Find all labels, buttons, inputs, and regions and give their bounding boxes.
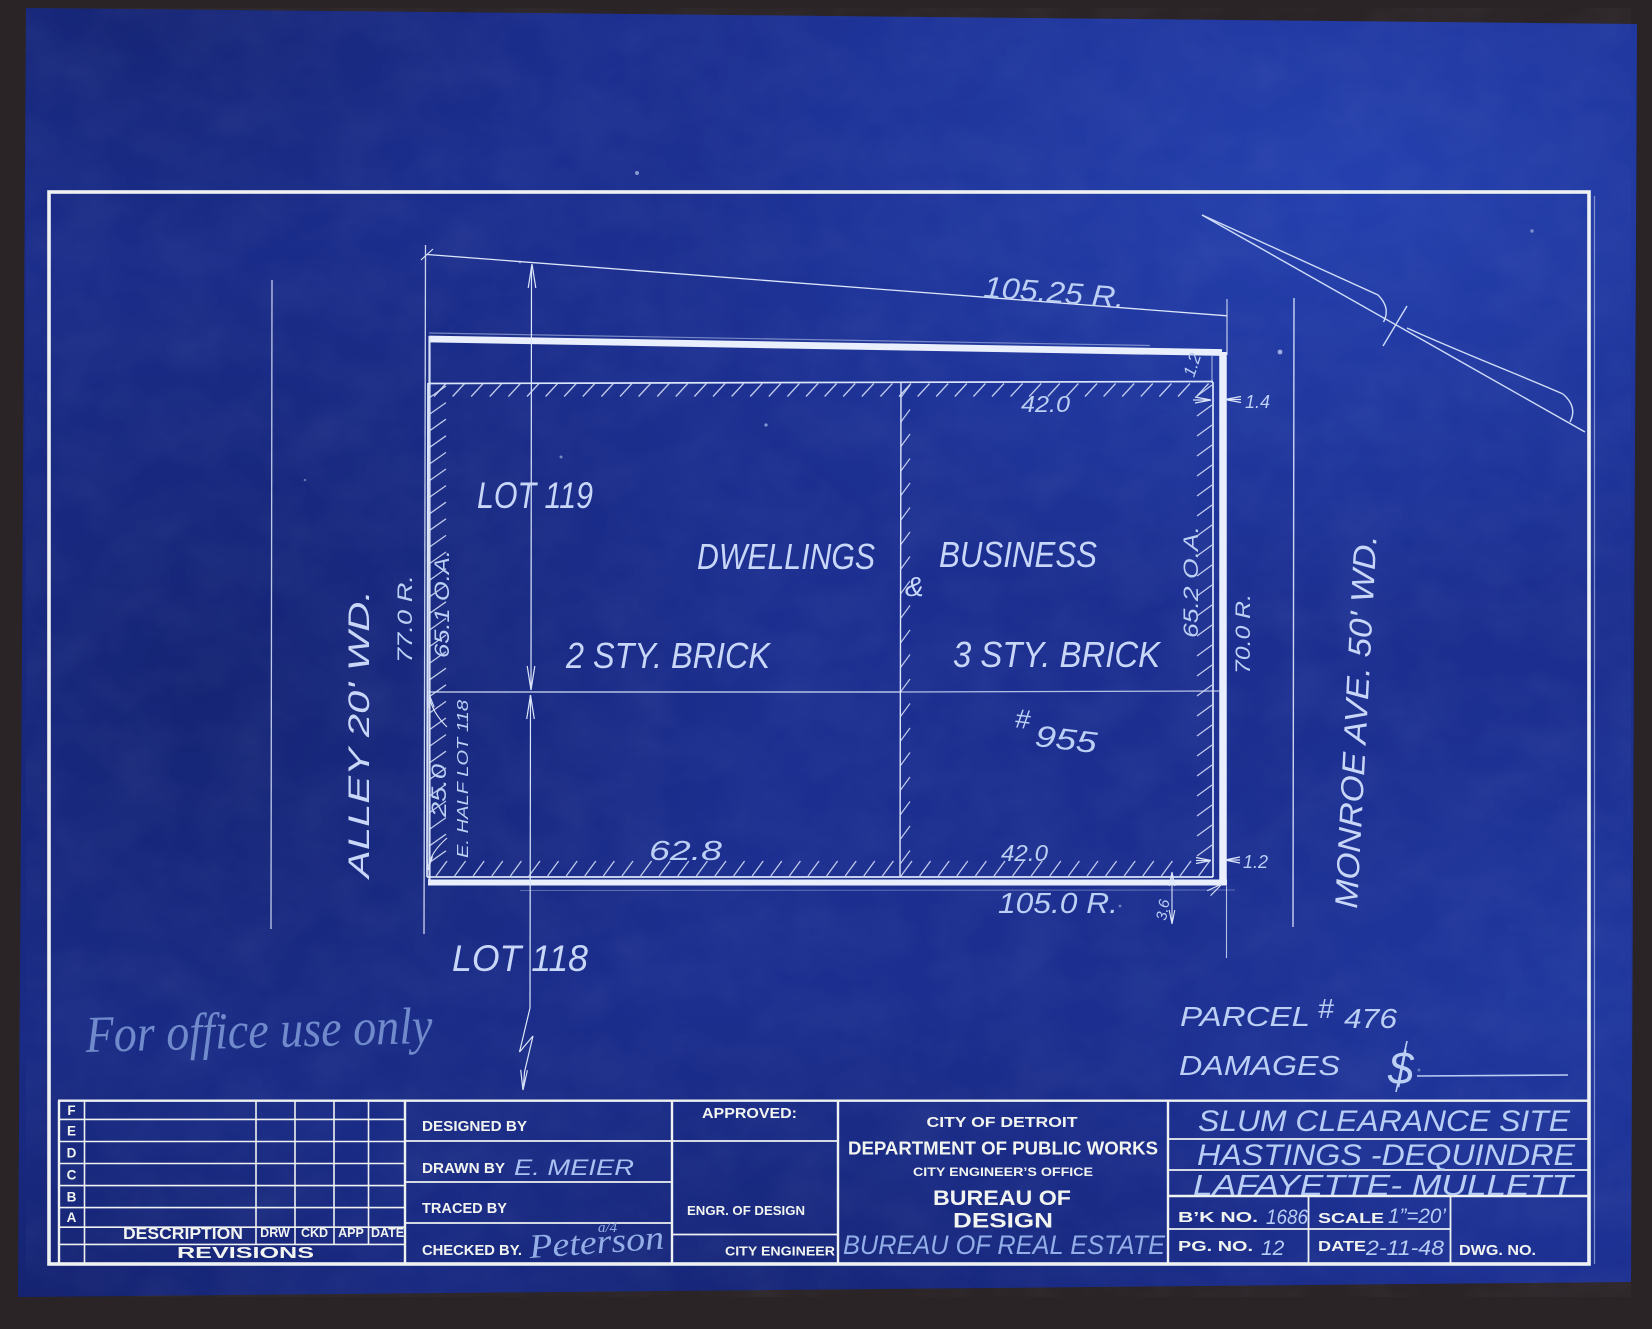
svg-text:1.4: 1.4 (1245, 392, 1270, 412)
svg-text:DATE: DATE (371, 1226, 404, 1240)
svg-text:BUSINESS: BUSINESS (939, 534, 1097, 575)
svg-text:LOT 119: LOT 119 (477, 475, 593, 516)
svg-text:1686: 1686 (1266, 1206, 1308, 1229)
svg-text:DATE: DATE (1318, 1238, 1366, 1255)
svg-text:TRACED BY: TRACED BY (422, 1201, 507, 1217)
svg-text:C: C (67, 1168, 77, 1183)
svg-text:PG. NO.: PG. NO. (1178, 1238, 1253, 1255)
svg-text:3 STY. BRICK: 3 STY. BRICK (953, 634, 1162, 675)
svg-text:2 STY. BRICK: 2 STY. BRICK (565, 635, 772, 676)
svg-text:77.0 R.: 77.0 R. (394, 575, 417, 663)
svg-text:476: 476 (1344, 1003, 1397, 1034)
svg-text:25.0: 25.0 (428, 764, 451, 819)
svg-text:DAMAGES: DAMAGES (1179, 1050, 1340, 1081)
svg-text:62.8: 62.8 (649, 835, 723, 866)
svg-text:SLUM CLEARANCE SITE: SLUM CLEARANCE SITE (1198, 1105, 1571, 1138)
svg-text:CITY ENGINEER’S OFFICE: CITY ENGINEER’S OFFICE (913, 1167, 1093, 1179)
svg-text:&: & (905, 571, 924, 602)
svg-text:CITY ENGINEER: CITY ENGINEER (725, 1245, 835, 1259)
svg-text:D: D (67, 1146, 77, 1161)
svg-text:CKD: CKD (301, 1226, 328, 1240)
svg-text:DESCRIPTION: DESCRIPTION (123, 1224, 243, 1243)
svg-text:#: # (1318, 993, 1334, 1024)
svg-text:REVISIONS: REVISIONS (177, 1245, 314, 1262)
svg-text:E. MEIER: E. MEIER (514, 1155, 634, 1180)
svg-text:65.1 O.A.: 65.1 O.A. (431, 550, 454, 658)
svg-text:For office use only: For office use only (84, 998, 434, 1064)
svg-text:BUREAU OF: BUREAU OF (933, 1186, 1071, 1210)
svg-text:70.0 R.: 70.0 R. (1232, 594, 1255, 674)
svg-text:B: B (67, 1190, 77, 1205)
svg-text:42.0: 42.0 (1001, 840, 1048, 866)
svg-text:DEPARTMENT OF PUBLIC WORKS: DEPARTMENT OF PUBLIC WORKS (848, 1139, 1158, 1159)
svg-text:105.0 R.: 105.0 R. (998, 888, 1118, 920)
svg-text:F: F (67, 1103, 75, 1118)
svg-text:SCALE: SCALE (1318, 1210, 1384, 1227)
svg-text:PARCEL: PARCEL (1180, 1001, 1310, 1032)
svg-text:A: A (67, 1210, 77, 1225)
svg-text:E: E (67, 1124, 76, 1139)
svg-text:APPROVED:: APPROVED: (702, 1106, 797, 1122)
svg-text:BUREAU OF REAL ESTATE: BUREAU OF REAL ESTATE (843, 1230, 1166, 1260)
svg-text:a/4: a/4 (598, 1220, 618, 1236)
svg-text:ALLEY 20' WD.: ALLEY 20' WD. (343, 590, 376, 881)
svg-text:1.2: 1.2 (1243, 852, 1268, 872)
svg-text:CITY OF DETROIT: CITY OF DETROIT (927, 1115, 1078, 1131)
svg-text:LOT 118: LOT 118 (452, 938, 588, 979)
svg-text:CHECKED BY.: CHECKED BY. (422, 1243, 522, 1259)
svg-text:1”=20’: 1”=20’ (1388, 1205, 1446, 1228)
svg-text:42.0: 42.0 (1021, 391, 1070, 417)
svg-text:DRAWN BY: DRAWN BY (422, 1161, 505, 1177)
svg-text:2-11-48: 2-11-48 (1365, 1237, 1444, 1260)
svg-text:APP: APP (338, 1226, 364, 1240)
svg-text:DWELLINGS: DWELLINGS (697, 536, 875, 577)
svg-text:E. HALF LOT 118: E. HALF LOT 118 (455, 700, 472, 858)
svg-text:DWG. NO.: DWG. NO. (1459, 1242, 1536, 1259)
svg-text:B’K NO.: B’K NO. (1178, 1209, 1258, 1226)
svg-text:65.2 O.A.: 65.2 O.A. (1180, 526, 1203, 638)
svg-text:12: 12 (1261, 1237, 1285, 1260)
svg-text:DESIGN: DESIGN (953, 1209, 1053, 1233)
svg-text:LAFAYETTE- MULLETT: LAFAYETTE- MULLETT (1193, 1170, 1576, 1202)
svg-text:ENGR. OF DESIGN: ENGR. OF DESIGN (687, 1204, 805, 1218)
svg-text:DRW: DRW (260, 1226, 290, 1240)
svg-text:HASTINGS -DEQUINDRE: HASTINGS -DEQUINDRE (1197, 1139, 1576, 1172)
svg-text:DESIGNED BY: DESIGNED BY (422, 1119, 527, 1135)
